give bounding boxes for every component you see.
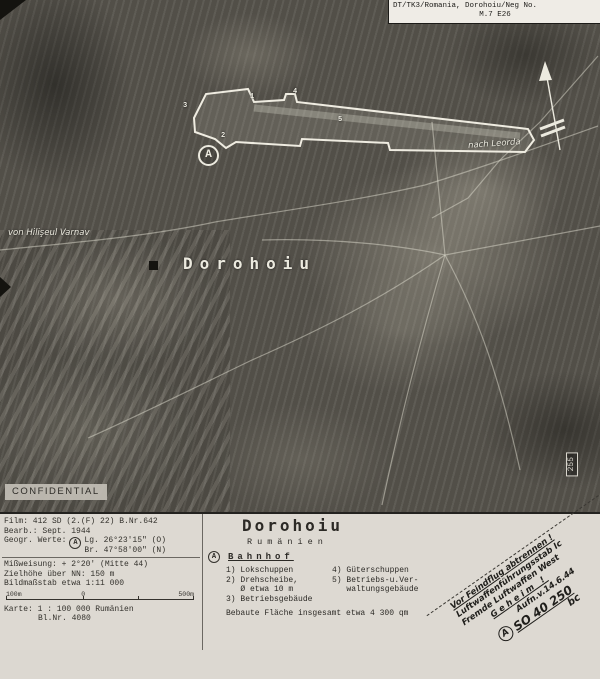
section-marker-a: A: [208, 551, 220, 563]
photo-town-label: Dorohoiu: [183, 254, 316, 273]
blatt-line: Bl.Nr. 4080: [38, 614, 200, 624]
geogr-values: Lg. 26°23'15" (O) Br. 47°58'00" (N): [84, 536, 166, 555]
left-rule: [2, 557, 200, 558]
geogr-marker-a: A: [69, 537, 81, 549]
scale-tick: [193, 596, 194, 600]
registration-marks: [0, 0, 158, 297]
point-marker-5: 5: [338, 116, 342, 124]
confidential-stamp: CONFIDENTIAL: [5, 484, 107, 500]
point-marker-2: 2: [221, 132, 225, 140]
karte-line: Karte: 1 : 100 000 Rumänien: [4, 605, 200, 615]
film-line: Film: 412 SD (2.(F) 22) B.Nr.642: [4, 517, 200, 527]
edge-number-tag: 255: [566, 452, 578, 476]
scale-line: [6, 599, 194, 600]
point-marker-4: 4: [293, 88, 297, 96]
section-name: Bahnhof: [228, 552, 294, 562]
missweisung-line: Mißweisung: + 2°20' (Mitte 44): [4, 560, 200, 570]
zielhoehe-line: Zielhöhe über NN: 150 m: [4, 570, 200, 580]
bearb-line: Bearb.: Sept. 1944: [4, 527, 200, 537]
point-marker-1: 1: [250, 93, 254, 101]
point-marker-3: 3: [183, 102, 187, 110]
scale-tick: [83, 596, 84, 600]
reference-header-box: DT/TK3/Romania, Dorohoiu/Neg No. M.7 E26: [388, 0, 600, 24]
north-arrow: [539, 61, 565, 150]
geogr-latitude: Br. 47°58'00" (N): [84, 546, 166, 556]
target-marker-a: A: [198, 145, 219, 166]
reference-line-1: DT/TK3/Romania, Dorohoiu/Neg No.: [393, 2, 597, 11]
scale-bar: 100m 0 500m: [6, 590, 194, 605]
geogr-longitude: Lg. 26°23'15" (O): [84, 536, 166, 546]
aerial-photo: Dorohoiu von Hilişeul Varnav nach Leorda…: [0, 0, 600, 512]
scale-tick: [138, 596, 139, 600]
geogr-label: Geogr. Werte:: [4, 536, 66, 555]
reference-line-2: M.7 E26: [393, 11, 597, 20]
bildmassstab-line: Bildmaßstab etwa 1:11 000: [4, 579, 200, 589]
photo-road-label-left: von Hilişeul Varnav: [8, 228, 90, 238]
scale-tick: [6, 596, 7, 600]
section-row: A Bahnhof: [208, 550, 464, 563]
panel-center-column: Dorohoiu Rumänien A Bahnhof 1) Lokschupp…: [202, 514, 464, 618]
target-country: Rumänien: [247, 537, 464, 547]
legend-col-1: 1) Lokschuppen 2) Drehscheibe, Ø etwa 10…: [226, 566, 332, 604]
panel-left-column: Film: 412 SD (2.(F) 22) B.Nr.642 Bearb.:…: [0, 514, 202, 624]
legend-col-2: 4) Güterschuppen 5) Betriebs-u.Ver- walt…: [332, 566, 418, 604]
geogr-row: Geogr. Werte: A Lg. 26°23'15" (O) Br. 47…: [4, 536, 200, 555]
legend-items: 1) Lokschuppen 2) Drehscheibe, Ø etwa 10…: [226, 566, 464, 604]
target-title: Dorohoiu: [242, 516, 343, 535]
